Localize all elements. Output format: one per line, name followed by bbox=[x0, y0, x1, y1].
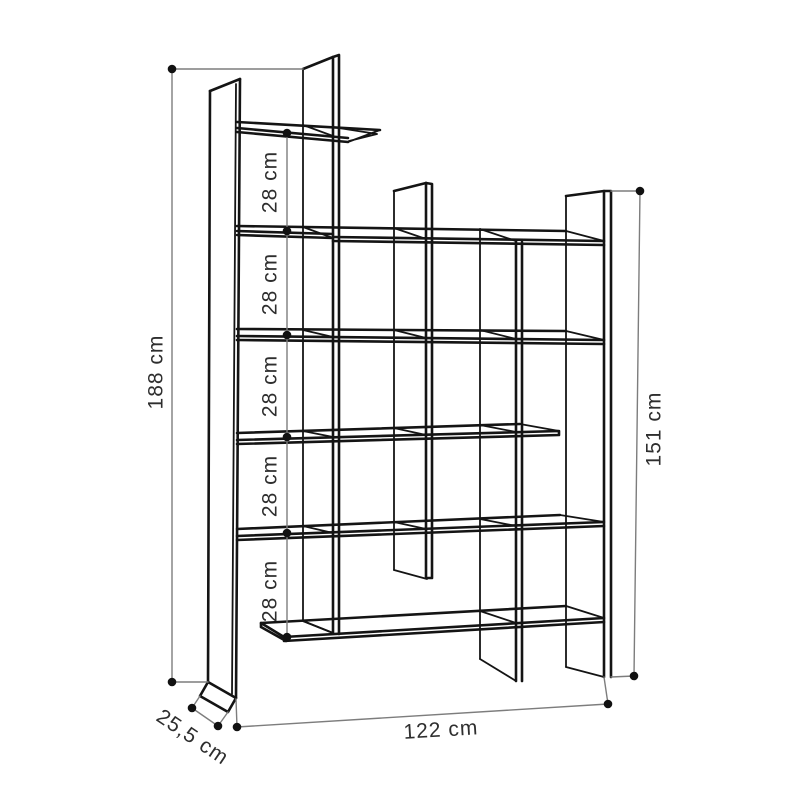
dim151-dot-top bbox=[636, 187, 645, 196]
shelf-3 bbox=[237, 329, 604, 344]
panel2-bottom-edge bbox=[394, 570, 427, 579]
shelf2-front-right-edges bbox=[333, 237, 604, 245]
dim25-line bbox=[192, 708, 218, 726]
dim25-dot-back bbox=[188, 704, 197, 713]
shelf4-back-edge bbox=[237, 424, 520, 433]
panel3-bottom-edge bbox=[480, 659, 516, 681]
shelf-2 bbox=[237, 226, 604, 245]
dimension-drawing-canvas: 188 cm 28 cm 28 cm 28 cm 28 cm 28 cm 151… bbox=[0, 0, 800, 800]
dim28-dot-3 bbox=[283, 331, 292, 340]
panel3-front-edges bbox=[516, 241, 522, 681]
dimension-shelf-spacing: 28 cm 28 cm 28 cm 28 cm 28 cm bbox=[259, 129, 292, 642]
dimension-label-right-height: 151 cm bbox=[643, 392, 666, 467]
left-panel-back-edge bbox=[208, 91, 210, 682]
dim151-dot-bottom bbox=[630, 672, 639, 681]
left-panel-front-edge bbox=[236, 79, 240, 698]
dimension-label-gap-4: 28 cm bbox=[259, 455, 282, 517]
dimension-label-width: 122 cm bbox=[403, 716, 479, 744]
left-panel-foot bbox=[200, 682, 236, 712]
panel1-top-edge bbox=[303, 57, 333, 69]
shelf-5 bbox=[237, 515, 604, 540]
dim28-dot-5 bbox=[283, 529, 292, 538]
dim25-dot-front bbox=[214, 722, 223, 731]
shelf4-end-wedge bbox=[520, 424, 559, 431]
dim28-dot-4 bbox=[283, 433, 292, 442]
shelf-1 bbox=[237, 122, 380, 142]
dim151-line bbox=[634, 191, 640, 676]
bookshelf-dimension-diagram: 188 cm 28 cm 28 cm 28 cm 28 cm 28 cm 151… bbox=[0, 0, 800, 800]
dimension-label-depth: 25,5 cm bbox=[152, 705, 233, 770]
shelf5-front-edges bbox=[237, 522, 604, 540]
shelf5-back-edge bbox=[237, 515, 560, 529]
dimension-label-gap-2: 28 cm bbox=[259, 253, 282, 315]
bottom-shelf bbox=[261, 606, 604, 641]
panel2-top-edge bbox=[394, 183, 426, 191]
dim122-dot-left bbox=[233, 723, 242, 732]
dimension-label-gap-3: 28 cm bbox=[259, 355, 282, 417]
dim151-extension-lines bbox=[611, 191, 640, 677]
bottom-shelf-left-cap bbox=[261, 623, 286, 641]
dim188-dot-top bbox=[168, 65, 177, 74]
dim188-dot-bottom bbox=[168, 678, 177, 687]
dimension-right-height: 151 cm bbox=[611, 187, 666, 681]
dimension-width: 122 cm bbox=[233, 677, 613, 744]
right-panel-front-edges bbox=[604, 191, 611, 677]
right-panel-top-edge bbox=[566, 191, 604, 196]
dimension-label-gap-5: 28 cm bbox=[259, 560, 282, 622]
left-side-panel bbox=[200, 79, 240, 712]
dim28-dot-6 bbox=[283, 633, 292, 642]
bottom-shelf-back-edge bbox=[261, 606, 566, 623]
dimension-label-total-height: 188 cm bbox=[145, 335, 168, 410]
right-side-panel bbox=[566, 191, 611, 677]
right-panel-bottom-edge bbox=[566, 667, 604, 677]
dimension-label-gap-1: 28 cm bbox=[259, 151, 282, 213]
dim28-dot-2 bbox=[283, 227, 292, 236]
dim122-dot-right bbox=[604, 700, 613, 709]
dim28-dot-1 bbox=[283, 129, 292, 138]
